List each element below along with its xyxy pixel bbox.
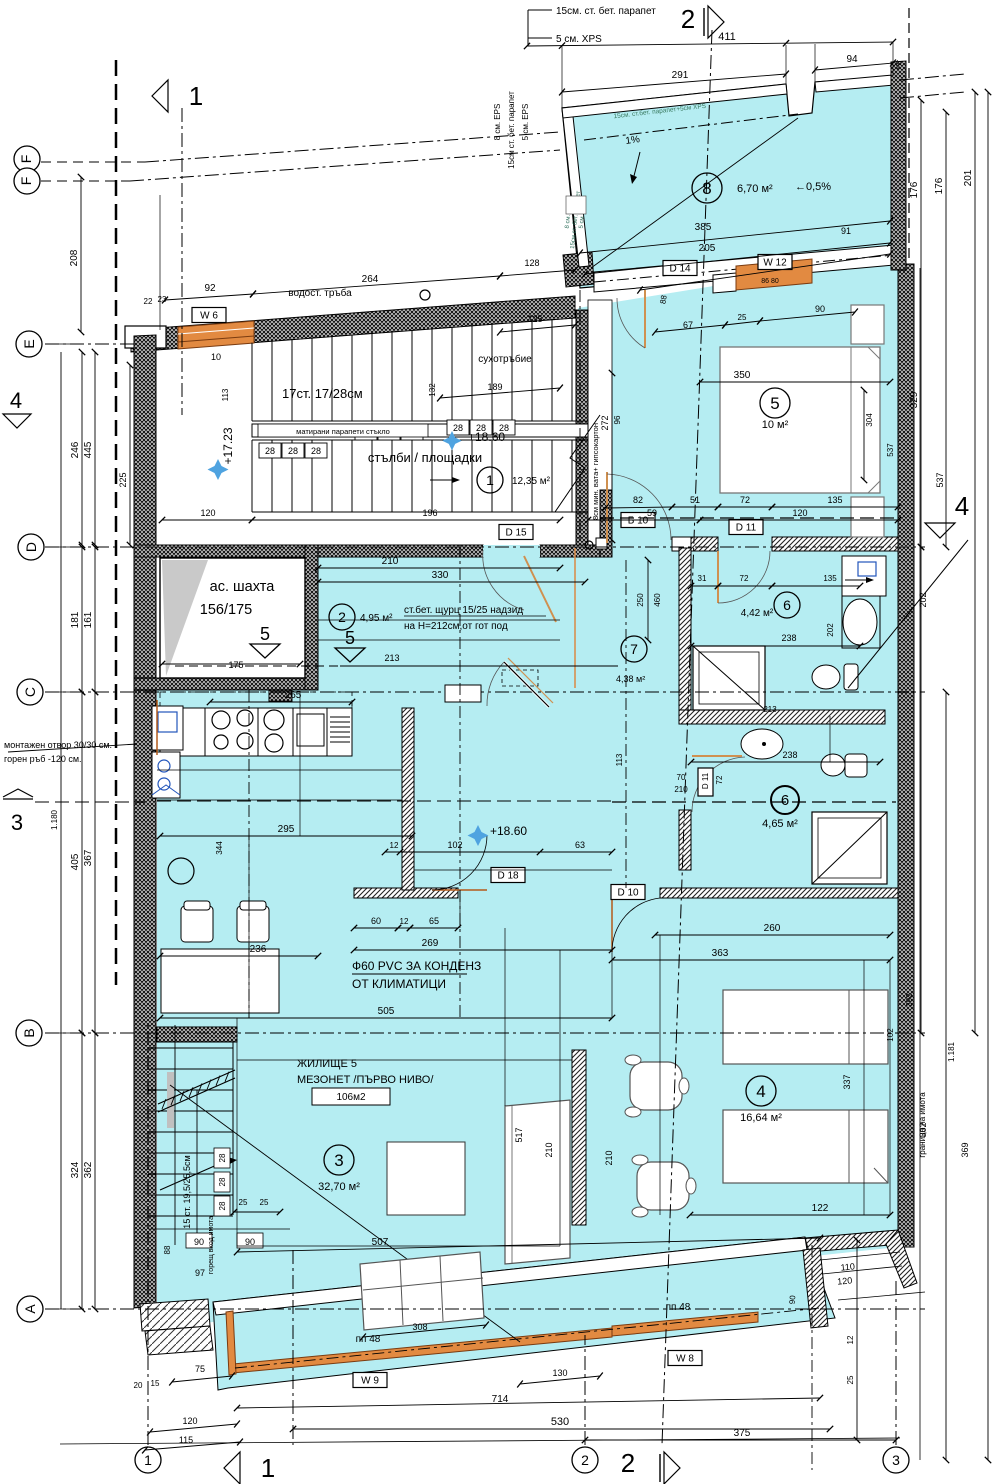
svg-text:2: 2: [581, 1452, 589, 1468]
svg-text:260: 260: [764, 923, 781, 934]
svg-text:C: C: [22, 687, 38, 697]
svg-text:3: 3: [334, 1151, 343, 1170]
svg-text:72: 72: [740, 574, 749, 583]
svg-text:295: 295: [278, 824, 295, 835]
svg-text:22: 22: [144, 297, 153, 306]
svg-text:1: 1: [486, 472, 494, 488]
svg-text:92: 92: [204, 283, 216, 294]
svg-text:236: 236: [250, 944, 267, 955]
svg-text:59: 59: [647, 508, 657, 518]
svg-text:32,70 м²: 32,70 м²: [318, 1181, 360, 1193]
svg-text:15см ст. бет. парапет: 15см ст. бет. парапет: [507, 91, 516, 169]
svg-text:189: 189: [487, 382, 502, 392]
svg-text:23: 23: [158, 295, 167, 304]
svg-text:стълби / площадки: стълби / площадки: [368, 450, 482, 465]
svg-text:210: 210: [382, 556, 399, 567]
svg-text:граница на имота: граница на имота: [918, 1092, 927, 1158]
svg-text:238: 238: [781, 633, 796, 643]
svg-text:363: 363: [712, 948, 729, 959]
svg-text:210: 210: [604, 1150, 614, 1165]
svg-text:115: 115: [179, 1435, 193, 1445]
svg-text:15см. ст. бет. парапет: 15см. ст. бет. парапет: [556, 5, 656, 17]
svg-text:208: 208: [69, 249, 80, 266]
svg-text:16,64 м²: 16,64 м²: [740, 1112, 782, 1124]
svg-text:202: 202: [918, 592, 928, 607]
svg-text:344: 344: [215, 841, 224, 855]
svg-text:405: 405: [70, 853, 81, 870]
svg-text:51: 51: [690, 495, 700, 505]
svg-text:D 10: D 10: [617, 888, 639, 899]
svg-text:25: 25: [738, 313, 747, 322]
svg-text:250: 250: [636, 593, 645, 607]
svg-text:МЕЗОНЕТ /ПЪРВО НИВО/: МЕЗОНЕТ /ПЪРВО НИВО/: [297, 1074, 434, 1086]
svg-text:F: F: [18, 177, 34, 186]
svg-text:горен ръб -120 см.: горен ръб -120 см.: [4, 754, 82, 764]
svg-text:329: 329: [909, 391, 920, 408]
svg-text:210: 210: [674, 785, 688, 794]
svg-text:D 18: D 18: [497, 871, 519, 882]
svg-text:+18.60: +18.60: [490, 824, 527, 838]
svg-text:25: 25: [239, 1198, 248, 1207]
svg-text:5: 5: [770, 394, 779, 413]
svg-text:330: 330: [432, 570, 449, 581]
svg-text:90: 90: [788, 1294, 798, 1304]
svg-text:3: 3: [11, 810, 23, 835]
svg-text:337: 337: [842, 1074, 852, 1089]
svg-text:5: 5: [345, 628, 355, 648]
svg-text:113: 113: [615, 753, 624, 766]
svg-text:120: 120: [200, 508, 215, 518]
svg-text:70: 70: [677, 773, 686, 782]
svg-text:175: 175: [228, 660, 243, 670]
svg-text:ОТ КЛИМАТИЦИ: ОТ КЛИМАТИЦИ: [352, 977, 446, 991]
svg-text:4,95 м²: 4,95 м²: [360, 613, 393, 624]
svg-text:505: 505: [378, 1006, 395, 1017]
svg-text:28: 28: [311, 446, 321, 456]
svg-text:←0,5%: ←0,5%: [795, 181, 831, 193]
svg-text:5 см. EPS: 5 см. EPS: [521, 104, 530, 141]
svg-text:3: 3: [892, 1452, 900, 1468]
svg-text:125: 125: [527, 314, 542, 324]
svg-text:12: 12: [400, 917, 409, 926]
svg-text:Ф60 PVC ЗА КОНДЕНЗ: Ф60 PVC ЗА КОНДЕНЗ: [352, 959, 481, 973]
svg-text:369: 369: [960, 1142, 970, 1157]
svg-text:201: 201: [963, 169, 974, 186]
svg-text:сухотръбие: сухотръбие: [478, 353, 532, 365]
svg-text:28: 28: [288, 446, 298, 456]
svg-text:132: 132: [428, 383, 437, 397]
svg-text:88: 88: [163, 1245, 172, 1254]
svg-text:82: 82: [633, 495, 643, 505]
svg-text:537: 537: [886, 443, 895, 457]
svg-text:196: 196: [422, 508, 437, 518]
svg-text:D 15: D 15: [505, 528, 527, 539]
svg-text:517: 517: [514, 1127, 524, 1142]
svg-text:1.180: 1.180: [50, 809, 59, 830]
svg-text:90: 90: [194, 1237, 204, 1247]
svg-text:291: 291: [672, 70, 689, 81]
svg-text:4,42 м²: 4,42 м²: [741, 608, 774, 619]
svg-text:10 м²: 10 м²: [762, 419, 789, 431]
svg-text:213: 213: [384, 653, 399, 663]
svg-text:460: 460: [653, 593, 662, 607]
svg-text:72: 72: [715, 775, 724, 784]
svg-text:1: 1: [261, 1453, 275, 1483]
svg-text:272: 272: [600, 415, 610, 430]
svg-text:161: 161: [83, 611, 94, 628]
svg-text:Б 10: Б 10: [628, 516, 649, 527]
svg-text:ас. шахта: ас. шахта: [210, 579, 276, 595]
svg-text:1.181: 1.181: [947, 1041, 956, 1062]
svg-text:матирани парапети стъкло: матирани парапети стъкло: [296, 427, 390, 436]
svg-text:90: 90: [245, 1237, 255, 1247]
svg-text:265: 265: [285, 690, 302, 701]
svg-text:8: 8: [702, 179, 711, 198]
svg-text:20: 20: [134, 1381, 143, 1390]
svg-text:2: 2: [681, 4, 695, 34]
svg-text:120: 120: [792, 508, 807, 518]
svg-text:362: 362: [83, 1161, 94, 1178]
svg-text:4,65 м²: 4,65 м²: [762, 818, 798, 830]
svg-text:8см мин. вата+ гипсокартон: 8см мин. вата+ гипсокартон: [591, 423, 600, 520]
svg-text:5 см. XPS: 5 см. XPS: [556, 34, 602, 45]
svg-text:106м2: 106м2: [336, 1092, 366, 1103]
svg-text:176: 176: [934, 177, 945, 194]
svg-text:12: 12: [846, 1335, 855, 1344]
svg-text:+17.23: +17.23: [221, 427, 235, 464]
svg-text:W 6: W 6: [200, 311, 218, 322]
svg-text:411: 411: [718, 31, 736, 43]
svg-text:445: 445: [83, 441, 94, 458]
svg-text:213: 213: [763, 705, 777, 714]
svg-text:102: 102: [886, 1028, 895, 1042]
svg-text:130: 130: [552, 1368, 567, 1378]
svg-text:246: 246: [70, 441, 81, 458]
svg-text:530: 530: [551, 1416, 569, 1428]
svg-text:225: 225: [118, 472, 128, 487]
svg-text:28: 28: [218, 1153, 227, 1162]
svg-text:+18.60: +18.60: [468, 430, 505, 444]
svg-text:86 80: 86 80: [761, 278, 779, 285]
svg-text:96: 96: [613, 415, 622, 424]
svg-text:91: 91: [841, 226, 851, 236]
svg-text:537: 537: [935, 472, 945, 487]
svg-text:W 12: W 12: [763, 258, 787, 269]
svg-text:4,38 м²: 4,38 м²: [616, 674, 645, 684]
svg-text:202: 202: [826, 623, 835, 637]
svg-text:28: 28: [218, 1177, 227, 1186]
svg-text:25: 25: [260, 1198, 269, 1207]
svg-text:2: 2: [338, 609, 346, 625]
svg-text:135: 135: [827, 495, 842, 505]
svg-text:324: 324: [70, 1161, 81, 1178]
svg-text:1: 1: [189, 81, 203, 111]
svg-text:D: D: [23, 542, 39, 552]
svg-text:210: 210: [544, 1142, 554, 1157]
svg-text:10: 10: [211, 352, 221, 362]
svg-text:D 11: D 11: [701, 772, 710, 789]
svg-text:15: 15: [151, 1379, 160, 1388]
svg-text:E: E: [21, 339, 37, 348]
svg-text:горещ вход имота: горещ вход имота: [208, 1216, 215, 1274]
svg-text:97: 97: [195, 1268, 205, 1278]
svg-text:W 9: W 9: [361, 1376, 379, 1387]
svg-text:12: 12: [390, 841, 399, 850]
svg-text:4: 4: [955, 491, 969, 521]
svg-text:367: 367: [83, 849, 94, 866]
svg-text:28: 28: [265, 446, 275, 456]
svg-text:90: 90: [815, 304, 825, 314]
svg-text:7: 7: [630, 641, 638, 657]
svg-text:269: 269: [422, 938, 439, 949]
svg-text:120: 120: [182, 1416, 197, 1426]
svg-text:63: 63: [575, 840, 585, 850]
svg-text:392: 392: [905, 993, 914, 1007]
svg-text:67: 67: [683, 320, 693, 330]
svg-text:94: 94: [846, 54, 858, 65]
svg-text:350: 350: [734, 370, 751, 381]
svg-text:2: 2: [621, 1448, 635, 1478]
svg-text:8 см. EPS: 8 см. EPS: [493, 104, 502, 141]
svg-text:28: 28: [218, 1201, 227, 1210]
svg-text:113: 113: [221, 388, 230, 401]
svg-text:60: 60: [371, 916, 381, 926]
svg-text:31: 31: [698, 574, 707, 583]
svg-text:пп 48: пп 48: [666, 1302, 691, 1313]
svg-text:A: A: [22, 1304, 38, 1314]
svg-text:375: 375: [734, 1428, 751, 1439]
svg-text:12,35 м²: 12,35 м²: [512, 476, 551, 487]
svg-text:28: 28: [453, 423, 463, 433]
svg-text:B: B: [21, 1028, 37, 1037]
svg-text:1: 1: [144, 1452, 152, 1468]
svg-text:4: 4: [756, 1082, 765, 1101]
svg-text:15 ст. 19,5/25,5см: 15 ст. 19,5/25,5см: [182, 1155, 192, 1228]
svg-text:72: 72: [740, 495, 750, 505]
svg-text:4: 4: [10, 388, 22, 413]
svg-text:304: 304: [865, 413, 874, 427]
svg-text:25: 25: [846, 1375, 855, 1384]
svg-text:156/175: 156/175: [200, 602, 252, 618]
svg-text:181: 181: [70, 611, 81, 628]
svg-text:5: 5: [260, 624, 270, 644]
svg-text:120: 120: [837, 1275, 853, 1286]
svg-text:75: 75: [195, 1364, 205, 1374]
svg-text:6: 6: [783, 597, 791, 613]
svg-text:65: 65: [429, 916, 439, 926]
svg-text:176: 176: [909, 181, 920, 198]
svg-text:W 8: W 8: [676, 1354, 694, 1365]
svg-text:122: 122: [812, 1203, 829, 1214]
svg-text:на Н=212см,от гот под: на Н=212см,от гот под: [404, 621, 508, 632]
svg-text:135: 135: [823, 574, 837, 583]
svg-text:17ст. 17/28см: 17ст. 17/28см: [282, 386, 363, 401]
svg-text:264: 264: [362, 274, 379, 285]
svg-text:F: F: [18, 155, 34, 164]
svg-text:385: 385: [695, 222, 712, 233]
svg-text:205: 205: [699, 243, 716, 254]
svg-text:6: 6: [781, 792, 789, 809]
svg-text:238: 238: [782, 750, 797, 760]
svg-text:D 11: D 11: [736, 523, 757, 534]
svg-text:308: 308: [412, 1322, 427, 1332]
svg-text:ст.бет. щурц 15/25 надзид: ст.бет. щурц 15/25 надзид: [404, 604, 523, 616]
svg-text:1%: 1%: [625, 134, 641, 147]
svg-text:714: 714: [492, 1394, 509, 1405]
svg-text:6,70 м²: 6,70 м²: [737, 183, 773, 195]
svg-text:128: 128: [524, 258, 539, 268]
